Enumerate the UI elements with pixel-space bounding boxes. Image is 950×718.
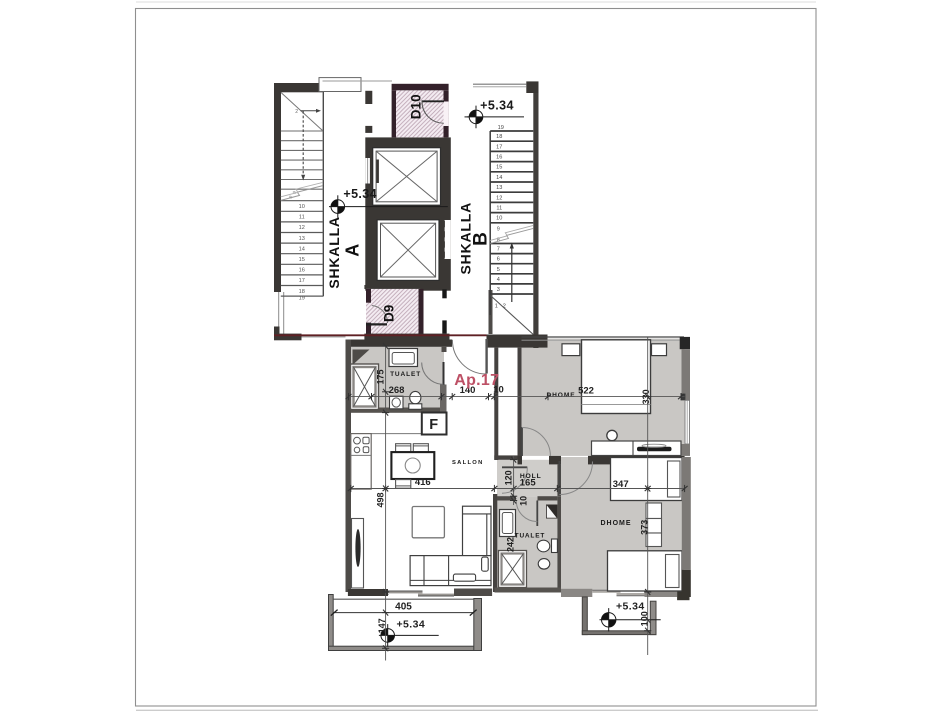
svg-text:SHKALLA: SHKALLA [326, 216, 342, 288]
svg-text:B: B [471, 232, 492, 246]
svg-text:12: 12 [496, 195, 502, 201]
svg-text:120: 120 [503, 470, 513, 485]
svg-text:18: 18 [299, 289, 305, 295]
svg-text:+5.34: +5.34 [343, 187, 377, 201]
svg-text:10: 10 [496, 216, 502, 222]
svg-text:4: 4 [497, 277, 500, 283]
svg-text:16: 16 [496, 155, 502, 161]
svg-text:242: 242 [505, 537, 515, 552]
svg-text:16: 16 [299, 268, 305, 274]
svg-text:347: 347 [613, 479, 629, 490]
svg-text:5: 5 [497, 267, 500, 273]
svg-text:10: 10 [519, 496, 529, 506]
svg-text:3: 3 [497, 287, 500, 293]
svg-text:14: 14 [496, 175, 502, 181]
svg-text:1: 1 [495, 304, 498, 310]
svg-text:+5.34: +5.34 [616, 601, 645, 613]
svg-text:17: 17 [496, 144, 502, 150]
svg-text:DHOME: DHOME [600, 520, 631, 527]
svg-text:405: 405 [395, 601, 412, 612]
svg-text:TUALET: TUALET [390, 371, 421, 378]
svg-text:373: 373 [640, 520, 650, 535]
svg-text:11: 11 [299, 215, 305, 221]
svg-text:D10: D10 [408, 94, 423, 119]
svg-text:165: 165 [520, 478, 537, 489]
svg-text:9: 9 [497, 227, 500, 233]
svg-text:19: 19 [299, 295, 305, 301]
svg-text:7: 7 [497, 247, 500, 253]
svg-text:2: 2 [295, 109, 298, 115]
svg-text:SALLON: SALLON [452, 460, 484, 466]
svg-text:14: 14 [299, 246, 305, 252]
svg-text:6: 6 [497, 257, 500, 263]
svg-text:13: 13 [496, 185, 502, 191]
svg-text:416: 416 [415, 477, 431, 488]
svg-text:Ap.17: Ap.17 [454, 372, 499, 389]
svg-text:11: 11 [496, 206, 502, 212]
svg-text:18: 18 [496, 134, 502, 140]
svg-text:19: 19 [498, 125, 504, 131]
svg-text:TUALET: TUALET [515, 532, 545, 539]
svg-text:17: 17 [299, 278, 305, 284]
svg-text:268: 268 [389, 385, 405, 396]
svg-text:F: F [429, 417, 438, 433]
svg-text:A: A [342, 244, 362, 257]
svg-text:12: 12 [299, 225, 305, 231]
svg-text:10: 10 [299, 204, 305, 210]
svg-text:175: 175 [376, 369, 386, 384]
svg-text:498: 498 [376, 492, 386, 507]
svg-text:522: 522 [578, 386, 594, 397]
svg-text:+5.34: +5.34 [480, 98, 514, 112]
svg-text:+5.34: +5.34 [397, 618, 426, 630]
svg-text:15: 15 [496, 165, 502, 171]
svg-text:DHOME: DHOME [546, 392, 575, 399]
svg-text:13: 13 [299, 236, 305, 242]
svg-text:15: 15 [299, 257, 305, 263]
svg-text:D9: D9 [382, 305, 397, 322]
